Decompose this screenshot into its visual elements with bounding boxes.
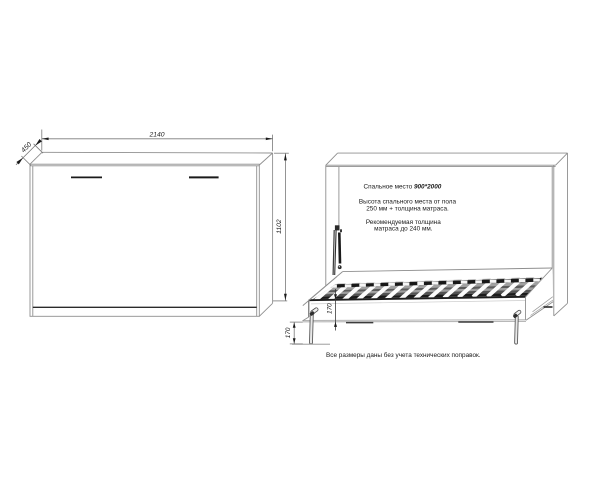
svg-text:1102: 1102 <box>276 219 283 234</box>
svg-text:170: 170 <box>327 303 334 314</box>
svg-text:матраса до 240 мм.: матраса до 240 мм. <box>374 226 433 233</box>
svg-text:250 мм + толщина матраса.: 250 мм + толщина матраса. <box>366 205 449 212</box>
svg-text:Спальное место 900*2000: Спальное место 900*2000 <box>364 184 442 191</box>
svg-text:Все размеры даны без учета тех: Все размеры даны без учета технических п… <box>326 351 481 359</box>
svg-text:450: 450 <box>20 141 33 154</box>
svg-text:170: 170 <box>285 327 292 338</box>
svg-text:2140: 2140 <box>148 132 164 139</box>
